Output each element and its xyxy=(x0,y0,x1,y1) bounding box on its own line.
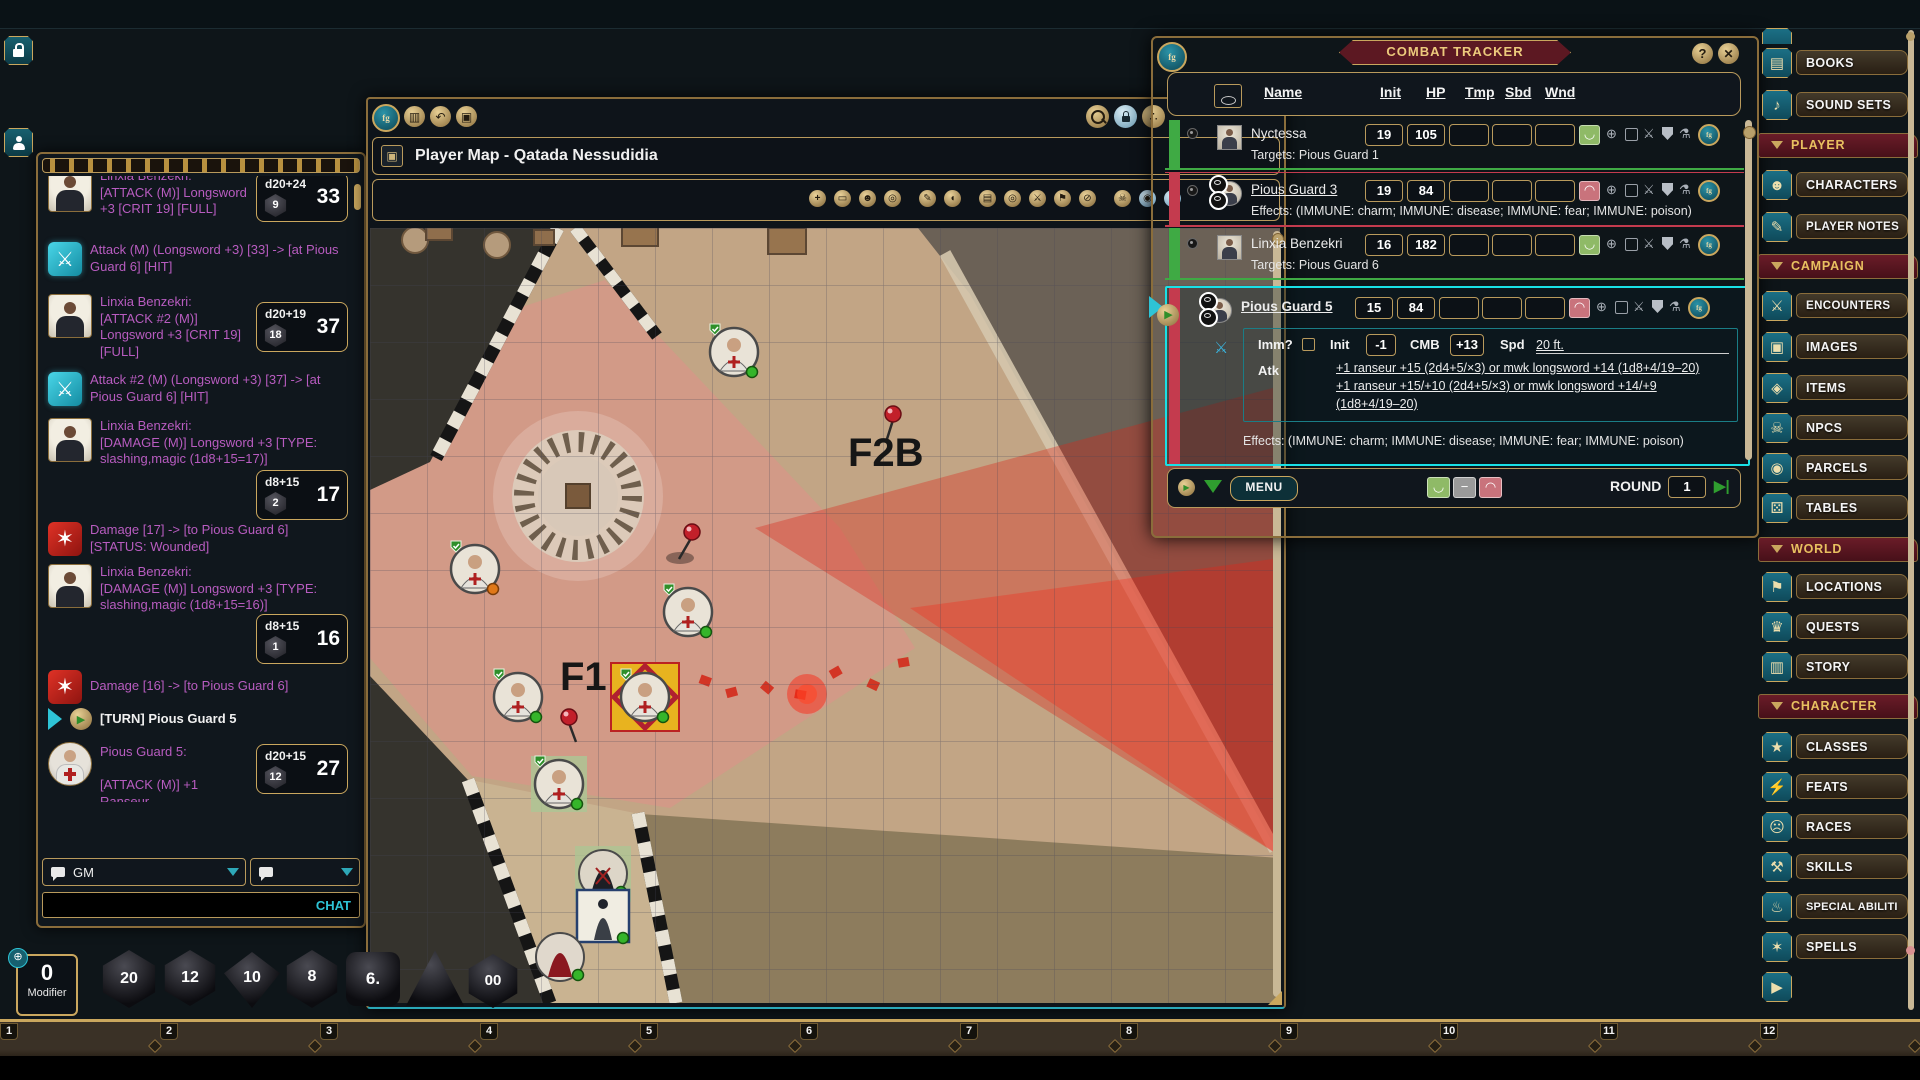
magnifier-icon xyxy=(1091,110,1105,124)
trophy-icon: ♛ xyxy=(1762,612,1792,642)
player-button[interactable] xyxy=(4,128,33,157)
visibility-checkbox xyxy=(1625,184,1638,197)
speech-bubble-icon xyxy=(259,867,273,877)
targeting-icon: ⊕ xyxy=(1596,300,1607,313)
fg-link-icon: fg xyxy=(1688,297,1710,319)
map-toolbar: + ▭ ☻ ◎ ✎ ◖ ▤ ◎ ⚔ ⚑ ⊘ ☠ ◉ ◔ xyxy=(372,179,1280,221)
active-turn-marker: ▶ xyxy=(1149,296,1179,326)
speech-bubble-icon xyxy=(51,867,65,877)
map-pin-icon: ⚑ xyxy=(1762,572,1792,602)
lock-icon xyxy=(13,49,24,57)
visibility-column-icon[interactable] xyxy=(1214,84,1242,108)
copy-button[interactable]: ▣ xyxy=(456,106,477,127)
help-button[interactable]: ? xyxy=(1692,43,1713,64)
spark-icon: ✶ xyxy=(1762,932,1792,962)
tracker-scrollbar[interactable] xyxy=(1745,120,1752,460)
chat-message-roll: Linxia Benzekri:[DAMAGE (M)] Longsword +… xyxy=(48,564,348,614)
chat-message-roll: Pious Guard 5:[ATTACK (M)] +1 Ranseur d2… xyxy=(48,742,348,802)
shield-icon xyxy=(1662,127,1673,140)
sidebar-section-campaign[interactable]: CAMPAIGN xyxy=(1758,254,1918,279)
map-title: Player Map - Qatada Nessudidia xyxy=(415,147,658,165)
chevron-down-icon xyxy=(1771,545,1783,553)
effects-icon: ⚗ xyxy=(1679,237,1691,250)
flame-icon: ♨ xyxy=(1762,892,1792,922)
tracker-footer: ▶ MENU ◡ − ◠ ROUND 1 ▶| xyxy=(1167,468,1741,508)
sidebar-item-npcs[interactable]: ☠ NPCS xyxy=(1758,413,1920,443)
modifier-label: Modifier xyxy=(18,987,76,999)
hotkey-slot[interactable]: 10 xyxy=(1440,1023,1600,1055)
avatar xyxy=(48,742,92,786)
books-icon: ▤ xyxy=(1762,48,1792,78)
sidebar-item-skills[interactable]: ⚒ SKILLS xyxy=(1758,852,1920,882)
sidebar-item-story[interactable]: ▥ STORY xyxy=(1758,652,1920,682)
chat-message-attack: ⚔ Attack #2 (M) (Longsword +3) [37] -> [… xyxy=(48,372,348,406)
visibility-checkbox xyxy=(1625,238,1638,251)
chat-message-attack: ⚔ Attack (M) (Longsword +3) [33] -> [at … xyxy=(48,242,348,276)
chat-message-damage: ✶ Damage [16] -> [to Pious Guard 6] xyxy=(48,670,348,704)
pan-tool[interactable]: + xyxy=(809,190,826,207)
lock-button[interactable] xyxy=(4,36,33,65)
chat-input[interactable]: CHAT xyxy=(42,892,360,918)
avatar xyxy=(48,418,92,462)
map-resize-handle[interactable] xyxy=(1268,991,1282,1005)
turn-play-icon: ▶ xyxy=(70,708,92,730)
attack-icon: ⚔ xyxy=(48,242,82,276)
sidebar-item-characters[interactable]: ☻ CHARACTERS xyxy=(1758,170,1920,200)
effects-icon: ⚗ xyxy=(1679,127,1691,140)
sidebar-item-partial[interactable] xyxy=(1758,26,1792,44)
sidebar-item-classes[interactable]: ★ CLASSES xyxy=(1758,732,1920,762)
token-red-figure[interactable] xyxy=(536,933,584,981)
shield-icon xyxy=(1662,237,1673,250)
chat-message-roll: Linxia Benzekri:[ATTACK #2 (M)] Longswor… xyxy=(48,294,348,361)
health-icon: ◠ xyxy=(1569,298,1590,318)
avatar xyxy=(48,294,92,338)
sidebar-item-play[interactable]: ▶ xyxy=(1758,972,1920,1002)
bottom-black-strip xyxy=(0,1056,1920,1080)
chat-message-damage: ✶ Damage [17] -> [to Pious Guard 6] [STA… xyxy=(48,522,348,556)
shield-star-icon: ★ xyxy=(1762,732,1792,762)
sidebar-item-parcels[interactable]: ◉ PARCELS xyxy=(1758,453,1920,483)
health-icon: ◡ xyxy=(1579,235,1600,255)
dice-icon: ⚄ xyxy=(1762,493,1792,523)
attack-icon: ⚔ xyxy=(1643,127,1655,140)
chat-channel-select[interactable]: GM xyxy=(42,858,246,886)
shield-icon xyxy=(1662,183,1673,196)
lock-view-button[interactable] xyxy=(1114,105,1137,128)
token-pious-guard-active[interactable] xyxy=(611,663,679,731)
col-init[interactable]: Init xyxy=(1380,84,1401,100)
zoom-button[interactable] xyxy=(1086,105,1109,128)
modifier-target-icon: ⊕ xyxy=(8,948,28,968)
dice-result[interactable]: d20+19 18 37 xyxy=(256,302,348,352)
chat-window: Linxia Benzekri:[ATTACK (M)] Longsword +… xyxy=(36,152,366,928)
skull-icon: ☠ xyxy=(1762,413,1792,443)
targeting-icon: ⊕ xyxy=(1606,237,1617,250)
menu-button[interactable]: MENU xyxy=(1230,476,1298,501)
effects-icon: ⚗ xyxy=(1679,183,1691,196)
chat-language-select[interactable] xyxy=(250,858,360,886)
npc-detail-panel: ⚔ Imm? Init -1 CMB +13 Spd 20 ft. Atk +1… xyxy=(1243,328,1738,422)
sidebar-item-items[interactable]: ◈ ITEMS xyxy=(1758,373,1920,403)
col-wnd[interactable]: Wnd xyxy=(1545,84,1575,100)
sidebar-item-player-notes[interactable]: ✎ PLAYER NOTES xyxy=(1758,212,1920,242)
tracker-row[interactable]: Pious Guard 3 19 84 ◠ ⊕ ⚔ ⚗ fg Effects: … xyxy=(1165,172,1744,225)
turn-wedge-icon xyxy=(48,708,62,730)
map-tab-icon: ▣ xyxy=(381,145,403,167)
hotkey-slot[interactable]: 5 xyxy=(640,1023,800,1055)
chevron-down-icon xyxy=(1771,702,1783,710)
chat-log[interactable]: Linxia Benzekri:[ATTACK (M)] Longsword +… xyxy=(44,176,350,802)
init-value[interactable]: -1 xyxy=(1366,334,1396,356)
chat-message-turn: ▶ [TURN] Pious Guard 5 xyxy=(48,708,348,730)
top-decor-strip xyxy=(0,0,1920,29)
token-tool[interactable]: ☻ xyxy=(859,190,876,207)
sidebar-scrollbar[interactable] xyxy=(1908,30,1914,1010)
label-f1: F1 xyxy=(560,655,607,699)
avatar xyxy=(48,176,92,212)
next-round-button[interactable]: ▶| xyxy=(1714,477,1730,495)
combat-tool[interactable]: ⚔ xyxy=(1029,190,1046,207)
chat-window-ornament xyxy=(42,158,360,173)
fg-menu-button[interactable]: fg xyxy=(372,104,400,132)
eye-badge-icon[interactable] xyxy=(1209,191,1228,210)
sidebar-section-player[interactable]: PLAYER xyxy=(1758,133,1918,158)
tools-icon: ⚒ xyxy=(1762,852,1792,882)
hotkey-slot[interactable]: 12 xyxy=(1760,1023,1920,1055)
visibility-checkbox xyxy=(1625,128,1638,141)
tracker-row-active[interactable]: ▶ Pious Guard 5 15 84 ◠ ⊕ ⚔ ⚗ fg ⚔ Imm? … xyxy=(1165,286,1750,466)
shield-icon xyxy=(1652,300,1663,313)
visibility-checkbox xyxy=(1615,301,1628,314)
next-actor-button[interactable] xyxy=(1204,480,1222,493)
restrict-tool[interactable]: ⊘ xyxy=(1079,190,1096,207)
targeting-icon: ⊕ xyxy=(1606,183,1617,196)
hotkey-slot[interactable]: 7 xyxy=(960,1023,1120,1055)
note-icon: ✎ xyxy=(1762,212,1792,242)
sidebar-item-books[interactable]: ▤ BOOKS xyxy=(1758,48,1920,78)
sidebar-item-sound-sets[interactable]: ♪ SOUND SETS xyxy=(1758,90,1920,120)
person-icon xyxy=(12,136,26,150)
death-marker-tool[interactable]: ☠ xyxy=(1114,190,1131,207)
effects-icon: ⚗ xyxy=(1669,300,1681,313)
layers-tool[interactable]: ▤ xyxy=(979,190,996,207)
imm-checkbox[interactable] xyxy=(1302,338,1315,351)
tracker-header: Name Init HP Tmp Sbd Wnd xyxy=(1167,72,1741,116)
round-label: ROUND xyxy=(1610,478,1661,494)
close-button[interactable]: ✕ xyxy=(1718,43,1739,64)
play-icon: ▶ xyxy=(1762,972,1792,1002)
sidebar-item-quests[interactable]: ♛ QUESTS xyxy=(1758,612,1920,642)
map-title-bar[interactable]: ▣ Player Map - Qatada Nessudidia xyxy=(372,137,1280,175)
sidebar-item-spells[interactable]: ✶ SPELLS xyxy=(1758,932,1920,962)
sidebar-item-races[interactable]: ☹ RACES xyxy=(1758,812,1920,842)
attack-icon: ⚔ xyxy=(1643,183,1655,196)
orc-face-icon: ☹ xyxy=(1762,812,1792,842)
bullseye-tool[interactable]: ◎ xyxy=(1004,190,1021,207)
clear-status-button[interactable]: − xyxy=(1453,477,1476,498)
hotkey-slot[interactable]: 2 xyxy=(160,1023,320,1055)
swords-icon: ⚔ xyxy=(1762,291,1792,321)
sidebar-item-images[interactable]: ▣ IMAGES xyxy=(1758,332,1920,362)
map-window: fg ▥ ↶ ▣ ∴ ▣ Player Map - Qatada Nessudi… xyxy=(366,97,1286,1009)
damage-icon: ✶ xyxy=(48,522,82,556)
hotkey-slot[interactable]: 8 xyxy=(1120,1023,1280,1055)
token-white-mage[interactable] xyxy=(577,890,629,944)
draw-tool[interactable]: ✎ xyxy=(919,190,936,207)
combat-tracker-window: fg COMBAT TRACKER ? ✕ Name Init HP Tmp S… xyxy=(1151,36,1759,538)
fg-menu-button[interactable]: fg xyxy=(1157,42,1187,72)
picture-icon: ▣ xyxy=(1762,332,1792,362)
chevron-down-icon xyxy=(1771,141,1783,149)
person-icon: ☻ xyxy=(1762,170,1792,200)
hotkey-bar: 1 2 3 4 5 6 7 8 9 10 11 12 xyxy=(0,1019,1920,1057)
target-tool[interactable]: ◎ xyxy=(884,190,901,207)
sidebar-item-encounters[interactable]: ⚔ ENCOUNTERS xyxy=(1758,291,1920,321)
coins-icon: ◉ xyxy=(1762,453,1792,483)
col-sbd[interactable]: Sbd xyxy=(1505,84,1531,100)
tracker-row[interactable]: Nyctessa 19 105 ◡ ⊕ ⚔ ⚗ fg Targets: Piou… xyxy=(1165,120,1744,168)
chat-message-roll: Linxia Benzekri:[DAMAGE (M)] Longsword +… xyxy=(48,418,348,468)
music-note-icon: ♪ xyxy=(1762,90,1792,120)
d6-die[interactable]: 6. xyxy=(346,952,400,1006)
chevron-down-icon xyxy=(227,868,239,876)
dice-result[interactable]: d20+15 12 27 xyxy=(256,744,348,794)
hotkey-slot[interactable]: 9 xyxy=(1280,1023,1440,1055)
panel-layout-button[interactable]: ▥ xyxy=(404,106,425,127)
eraser-tool[interactable]: ◖ xyxy=(944,190,961,207)
sidebar-item-locations[interactable]: ⚑ LOCATIONS xyxy=(1758,572,1920,602)
dice-result[interactable]: d20+24 9 33 xyxy=(256,176,348,222)
targeting-icon: ⊕ xyxy=(1606,127,1617,140)
cmb-value[interactable]: +13 xyxy=(1450,334,1484,356)
heal-all-button[interactable]: ◡ xyxy=(1427,477,1450,498)
tracker-row[interactable]: Linxia Benzekri 16 182 ◡ ⊕ ⚔ ⚗ fg Target… xyxy=(1165,228,1744,278)
hotkey-slot[interactable]: 11 xyxy=(1600,1023,1760,1055)
col-hp[interactable]: HP xyxy=(1426,84,1445,100)
fg-link-icon: fg xyxy=(1698,124,1720,146)
turn-indicator-icon: ▶ xyxy=(1178,479,1195,496)
dice-result[interactable]: d8+15 2 17 xyxy=(256,470,348,520)
sidebar-item-feats[interactable]: ⚡ FEATS xyxy=(1758,772,1920,802)
token-pious-guard[interactable] xyxy=(531,756,587,812)
flag-tool[interactable]: ⚑ xyxy=(1054,190,1071,207)
label-f2b: F2B xyxy=(848,431,924,475)
fist-icon: ⚡ xyxy=(1762,772,1792,802)
dice-result[interactable]: d8+15 1 16 xyxy=(256,614,348,664)
modifier-value: 0 xyxy=(18,960,76,986)
chat-message-roll: Linxia Benzekri:[ATTACK (M)] Longsword +… xyxy=(48,176,348,218)
book-icon: ▥ xyxy=(1762,652,1792,682)
chat-scrollbar[interactable] xyxy=(354,184,361,210)
attack-icon: ⚔ xyxy=(48,372,82,406)
sidebar-section-character[interactable]: CHARACTER xyxy=(1758,694,1918,719)
fg-link-icon: fg xyxy=(1698,234,1720,256)
undo-button[interactable]: ↶ xyxy=(430,106,451,127)
sidebar-item-tables[interactable]: ⚄ TABLES xyxy=(1758,493,1920,523)
hotkey-slot[interactable]: 1 xyxy=(0,1023,160,1055)
col-tmp[interactable]: Tmp xyxy=(1465,84,1495,100)
hotkey-slot[interactable]: 6 xyxy=(800,1023,960,1055)
wound-all-button[interactable]: ◠ xyxy=(1479,477,1502,498)
hotkey-slot[interactable]: 4 xyxy=(480,1023,640,1055)
sidebar-section-world[interactable]: WORLD xyxy=(1758,537,1918,562)
bag-icon: ◈ xyxy=(1762,373,1792,403)
hotkey-slot[interactable]: 3 xyxy=(320,1023,480,1055)
health-icon: ◠ xyxy=(1579,181,1600,201)
avatar xyxy=(48,564,92,608)
eye-badge-icon[interactable] xyxy=(1199,308,1218,327)
col-name[interactable]: Name xyxy=(1264,84,1302,100)
round-value[interactable]: 1 xyxy=(1668,476,1706,498)
window-title: COMBAT TRACKER xyxy=(1339,40,1571,65)
chevron-down-icon xyxy=(341,868,353,876)
sidebar-item-special-abilities[interactable]: ♨ SPECIAL ABILITI xyxy=(1758,892,1920,922)
chevron-down-icon xyxy=(1771,262,1783,270)
fg-link-icon: fg xyxy=(1698,180,1720,202)
map-canvas[interactable]: F1 F2B xyxy=(370,228,1280,1003)
attack-icon: ⚔ xyxy=(1633,300,1645,313)
attack-icon: ⚔ xyxy=(1643,237,1655,250)
health-icon: ◡ xyxy=(1579,125,1600,145)
melee-icon: ⚔ xyxy=(1214,341,1228,357)
select-tool[interactable]: ▭ xyxy=(834,190,851,207)
lock-icon xyxy=(1122,116,1130,122)
damage-icon: ✶ xyxy=(48,670,82,704)
